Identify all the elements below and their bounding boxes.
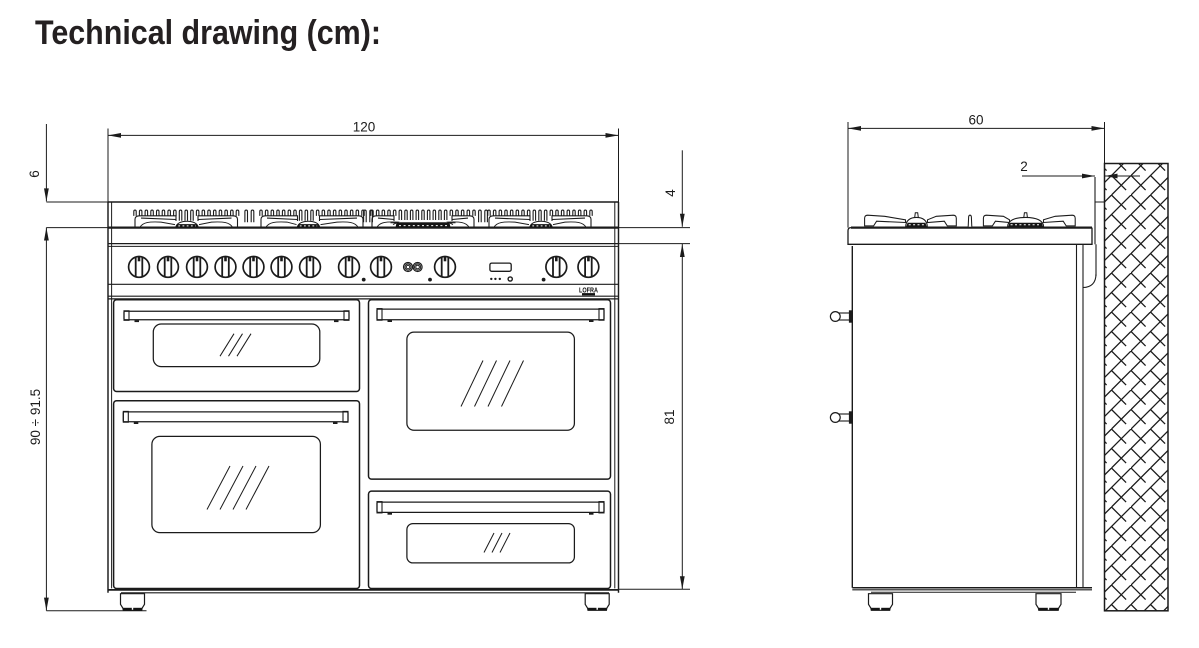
svg-text:4: 4 (663, 189, 678, 197)
svg-text:81: 81 (662, 409, 677, 424)
svg-text:60: 60 (968, 113, 983, 128)
svg-text:2: 2 (1020, 159, 1028, 174)
svg-text:Technical drawing (cm):: Technical drawing (cm): (35, 14, 381, 52)
svg-text:6: 6 (27, 170, 42, 178)
svg-text:90 ÷ 91.5: 90 ÷ 91.5 (28, 389, 43, 445)
svg-text:120: 120 (353, 120, 376, 135)
